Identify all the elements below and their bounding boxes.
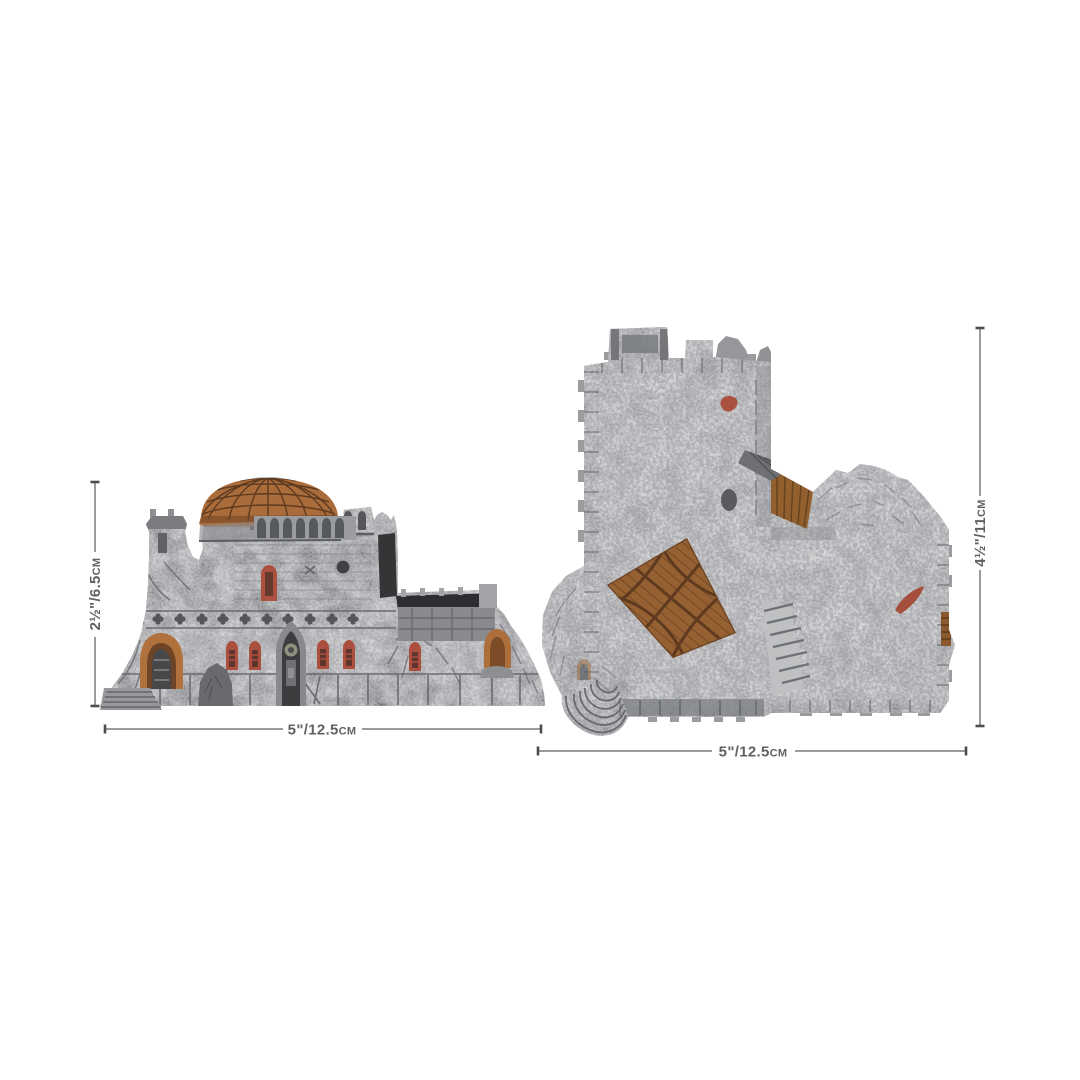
svg-text:5"/12.5CM: 5"/12.5CM [288,722,357,739]
svg-text:4½"/11CM: 4½"/11CM [972,499,989,567]
svg-text:2½"/6.5CM: 2½"/6.5CM [87,558,104,631]
svg-text:5"/12.5CM: 5"/12.5CM [719,744,788,761]
